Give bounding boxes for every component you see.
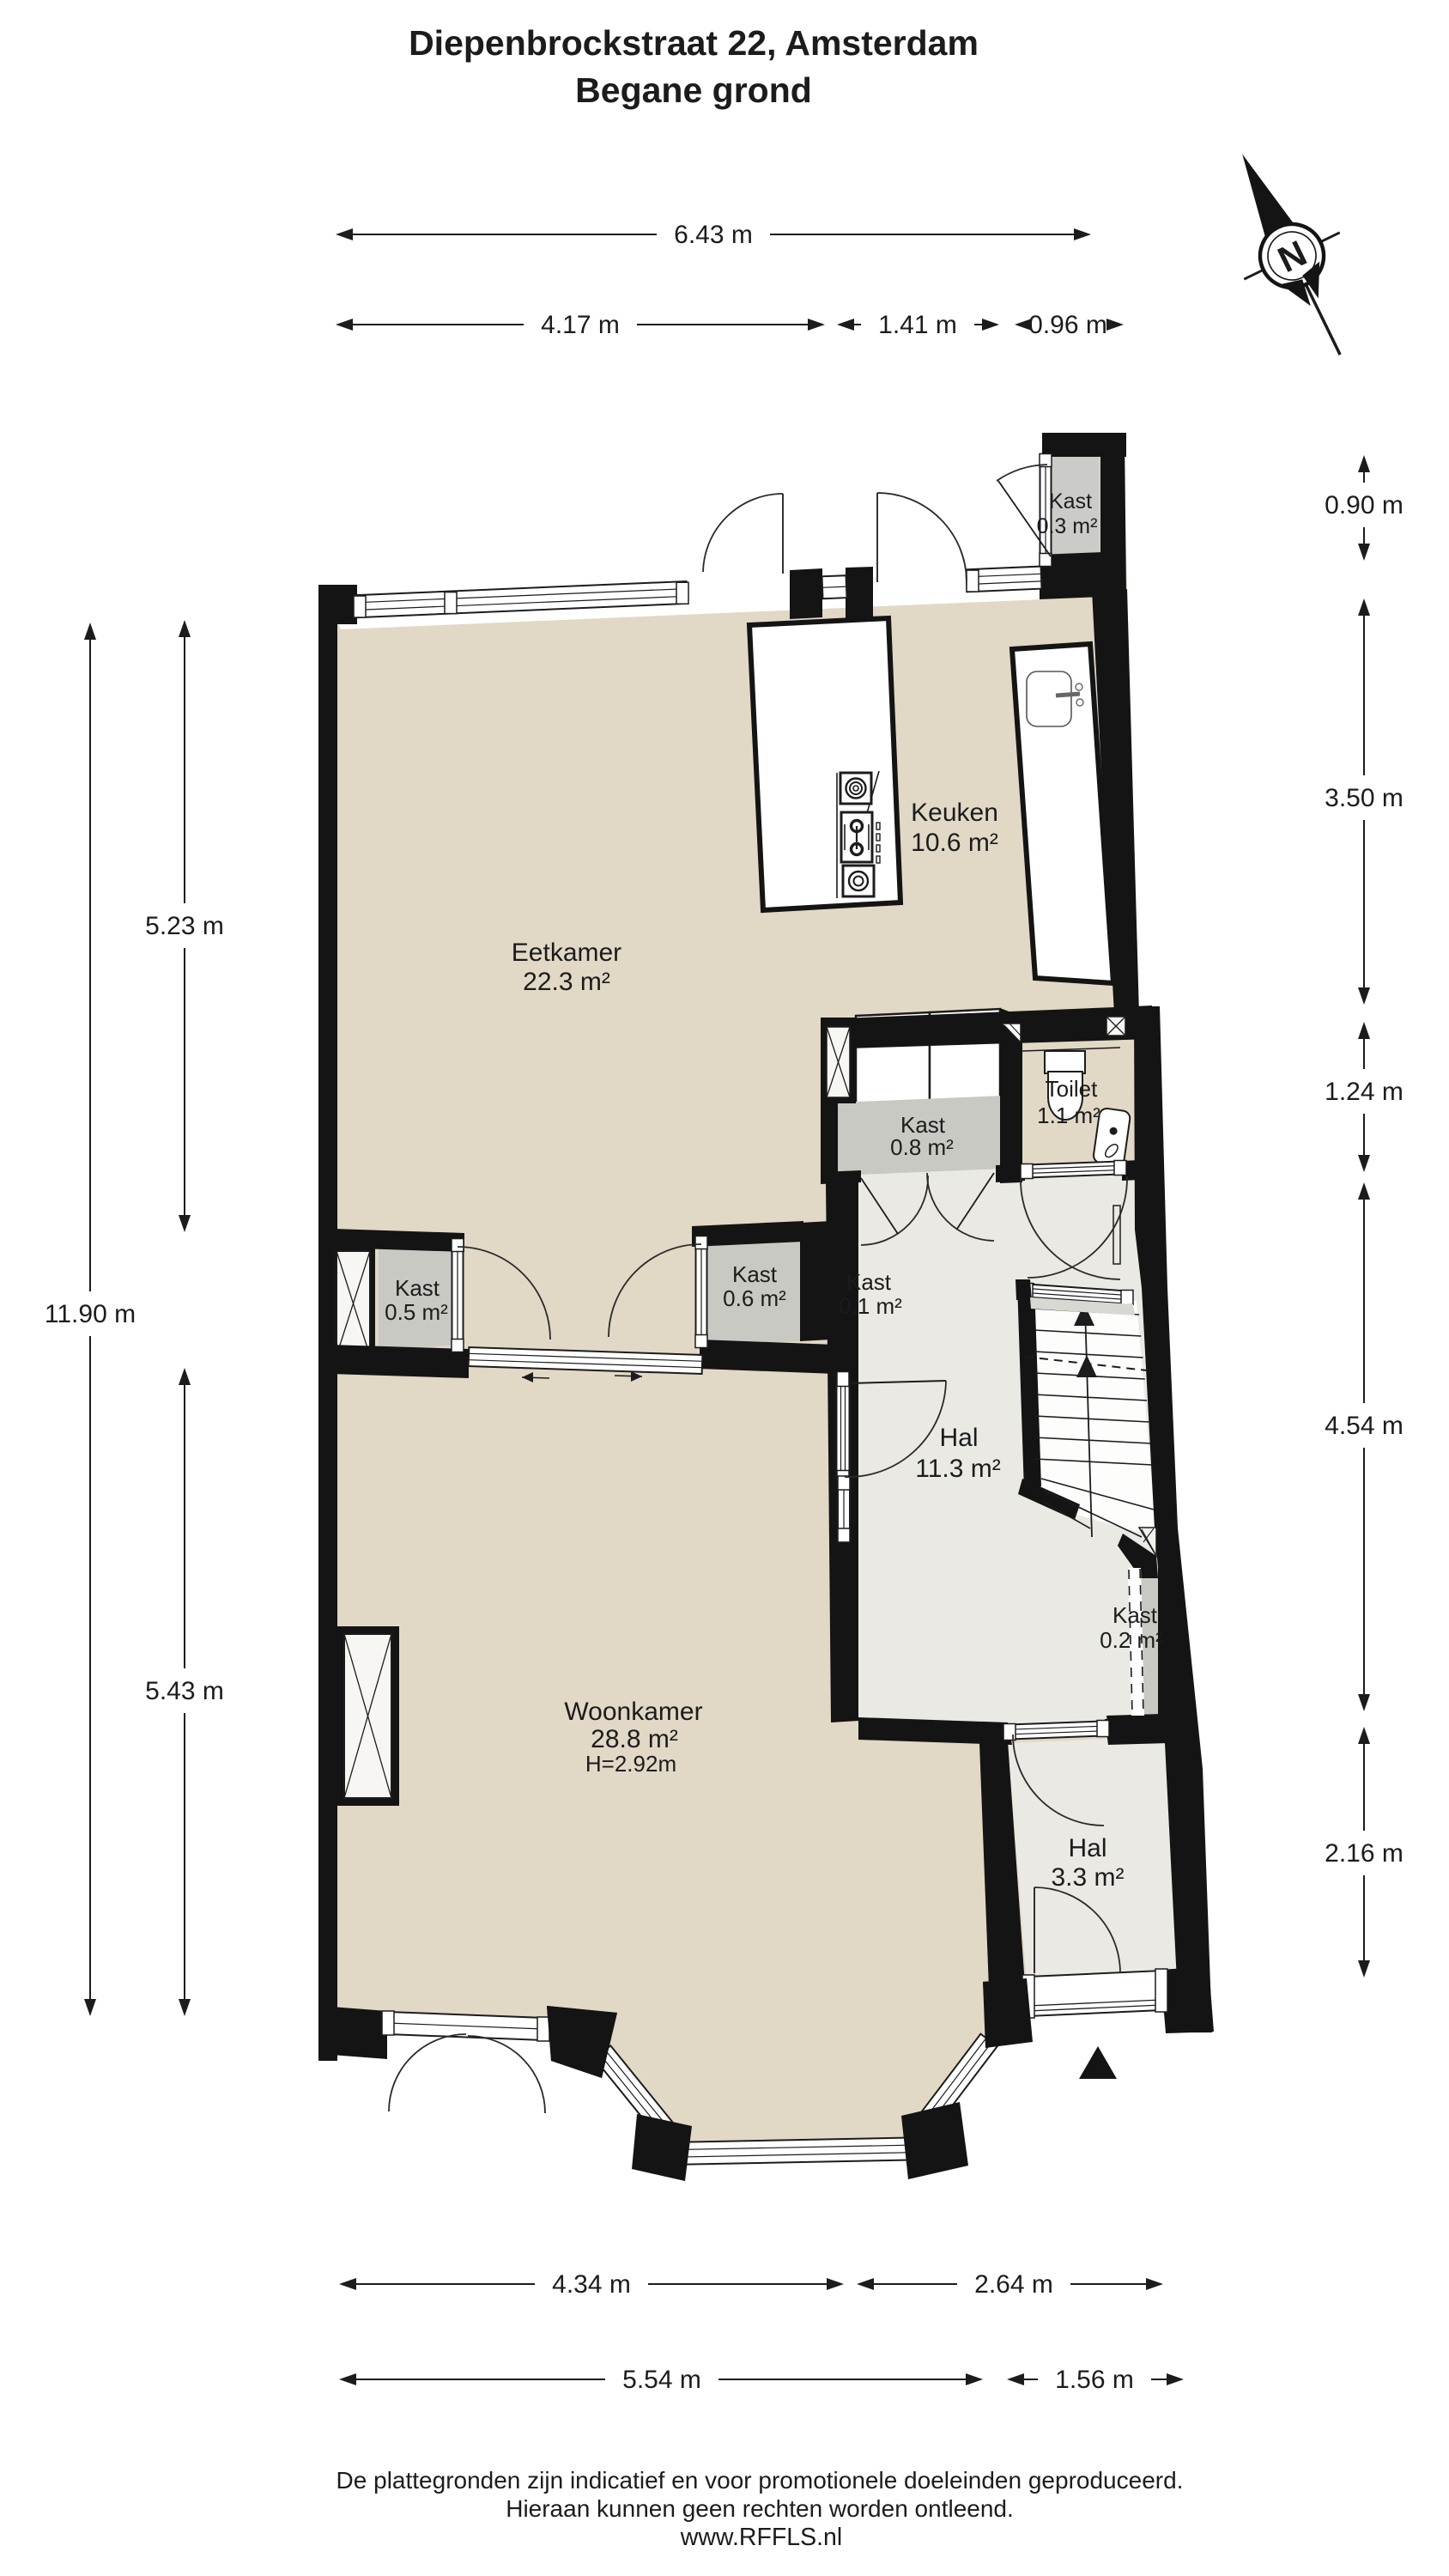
svg-text:0.90 m: 0.90 m [1325,491,1404,519]
svg-text:Kast: Kast [1113,1602,1158,1628]
svg-text:3.50 m: 3.50 m [1325,784,1404,812]
svg-text:Keuken: Keuken [911,799,998,827]
svg-text:Kast: Kast [1049,489,1092,513]
svg-text:0.3 m²: 0.3 m² [1037,514,1098,538]
svg-text:5.23 m: 5.23 m [145,912,224,940]
svg-text:11.3 m²: 11.3 m² [915,1455,1000,1483]
svg-text:4.17 m: 4.17 m [541,311,620,339]
svg-text:Hal: Hal [1068,1834,1106,1862]
svg-text:4.34 m: 4.34 m [552,2270,631,2299]
svg-text:0.8 m²: 0.8 m² [890,1134,954,1160]
svg-text:1.56 m: 1.56 m [1055,2366,1134,2394]
svg-text:Kast: Kast [395,1275,440,1301]
svg-text:2.16 m: 2.16 m [1325,1839,1404,1868]
svg-text:6.43 m: 6.43 m [674,221,753,249]
svg-text:11.90 m: 11.90 m [45,1300,136,1328]
svg-text:0.1 m²: 0.1 m² [839,1293,902,1319]
svg-text:Woonkamer: Woonkamer [564,1698,702,1726]
svg-text:www.RFFLS.nl: www.RFFLS.nl [680,2524,842,2551]
svg-text:22.3 m²: 22.3 m² [523,968,610,996]
svg-text:0.5 m²: 0.5 m² [385,1299,448,1325]
svg-text:Begane grond: Begane grond [575,70,812,110]
svg-text:4.54 m: 4.54 m [1325,1412,1404,1440]
svg-text:0.96 m: 0.96 m [1028,311,1107,339]
svg-text:3.3 m²: 3.3 m² [1051,1863,1124,1892]
svg-text:Toilet: Toilet [1046,1076,1098,1102]
svg-text:H=2.92m: H=2.92m [585,1751,676,1777]
svg-text:Kast: Kast [732,1261,778,1287]
svg-text:Hal: Hal [939,1424,978,1452]
svg-text:0.2 m²: 0.2 m² [1100,1627,1163,1653]
svg-text:Eetkamer: Eetkamer [512,939,621,967]
svg-text:De plattegronden zijn indicati: De plattegronden zijn indicatief en voor… [336,2467,1184,2494]
svg-text:10.6 m²: 10.6 m² [911,829,998,857]
svg-text:0.6 m²: 0.6 m² [723,1285,786,1311]
svg-text:1.1 m²: 1.1 m² [1037,1103,1100,1128]
svg-text:Hieraan kunnen geen rechten wo: Hieraan kunnen geen rechten worden ontle… [506,2495,1014,2522]
svg-text:1.24 m: 1.24 m [1325,1078,1404,1106]
svg-text:1.41 m: 1.41 m [878,311,957,339]
svg-text:Diepenbrockstraat 22, Amsterda: Diepenbrockstraat 22, Amsterdam [409,23,979,63]
svg-text:2.64 m: 2.64 m [974,2270,1053,2299]
svg-text:28.8 m²: 28.8 m² [591,1725,678,1753]
svg-text:5.54 m: 5.54 m [622,2366,701,2394]
svg-text:5.43 m: 5.43 m [145,1677,224,1705]
svg-text:Kast: Kast [846,1269,892,1295]
